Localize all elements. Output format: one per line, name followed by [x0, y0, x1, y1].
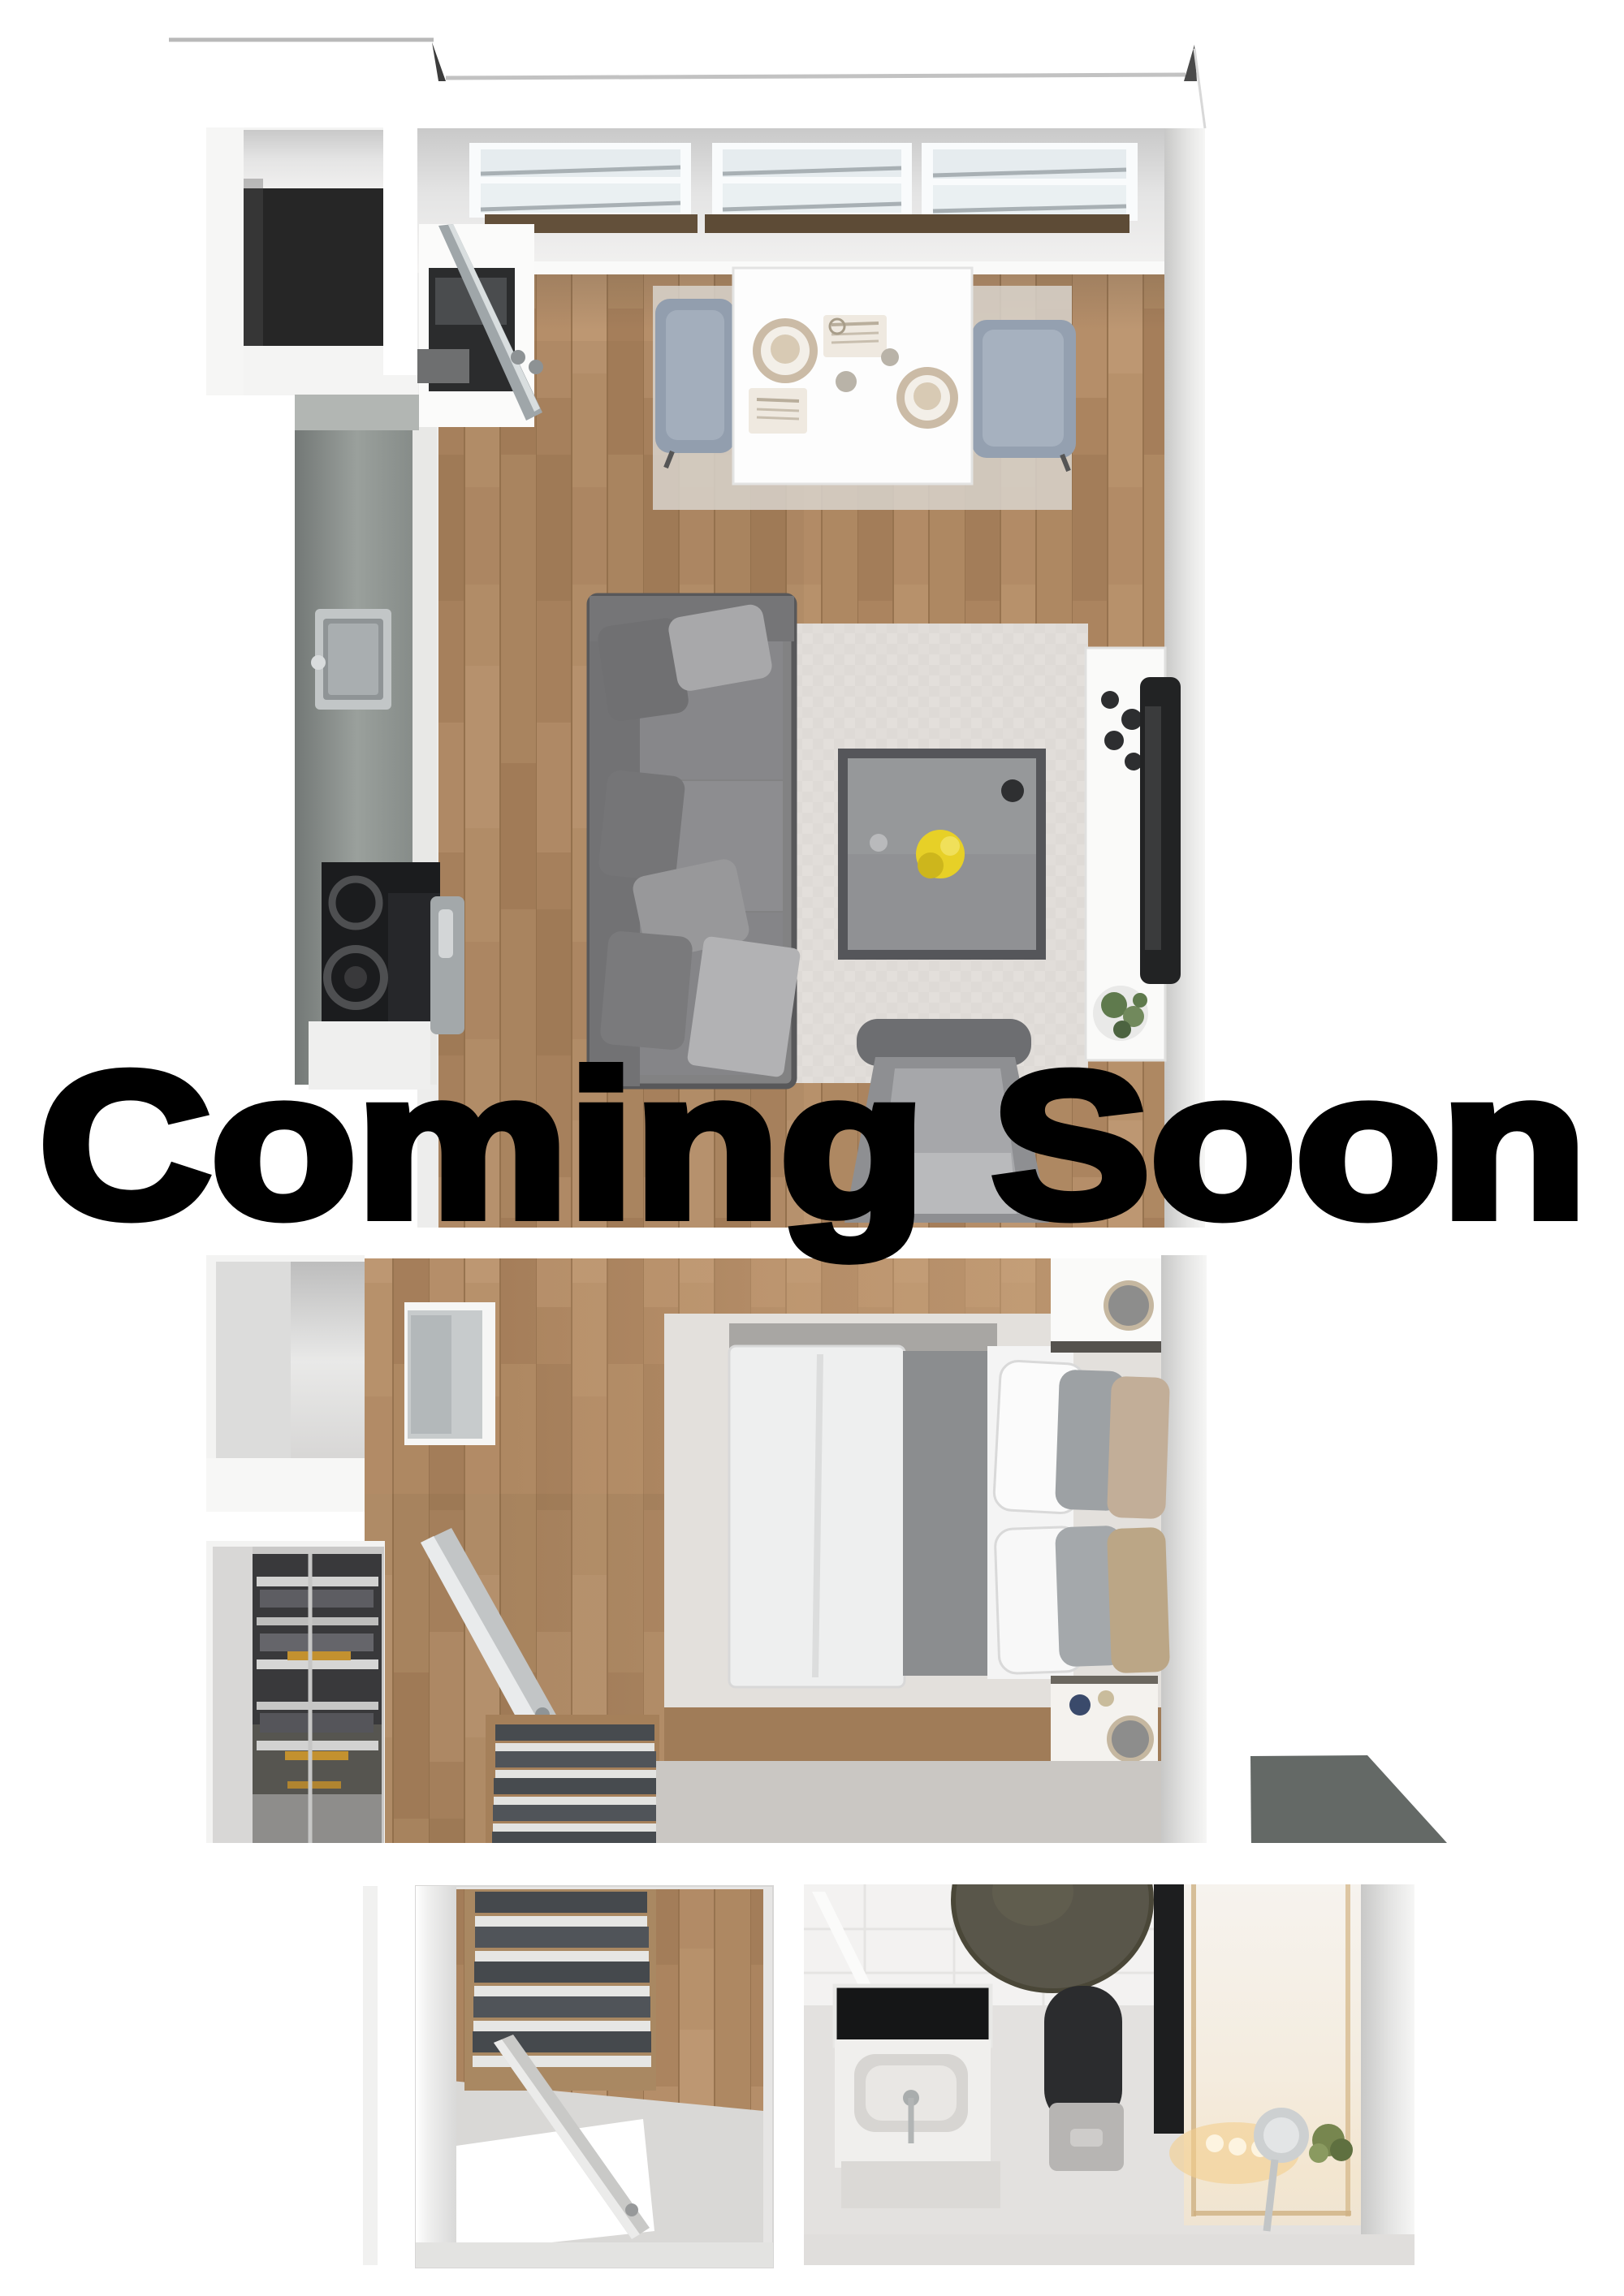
- svg-text:Coming Soon: Coming Soon: [39, 1029, 1587, 1260]
